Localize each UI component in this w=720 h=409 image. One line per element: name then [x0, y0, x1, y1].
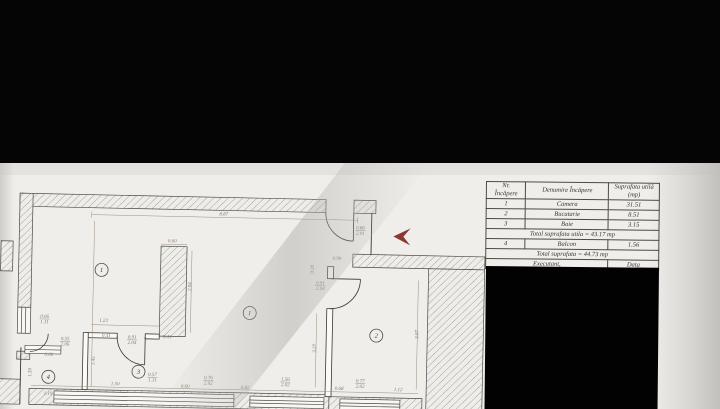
wall-left-upper	[18, 193, 33, 307]
dimension-label: 8.87	[219, 212, 228, 217]
dimension-label: 1.50	[111, 382, 120, 387]
dimension-label: 1.12	[394, 388, 403, 393]
wall-kitchen-left-lower	[325, 309, 333, 397]
dimension-label: 0.60	[168, 239, 177, 244]
dimension-label: 3.07	[415, 330, 420, 339]
paper-left-shadow	[0, 163, 14, 409]
col-header-area: Suprafata utilă (mp)	[609, 183, 660, 201]
window-symbol	[250, 396, 324, 409]
wall-corner-stub	[0, 379, 20, 404]
scan-viewport: 8.870.862.010.900.200.912.040.602.041.23…	[0, 0, 720, 409]
letterbox-top	[0, 0, 720, 163]
dimension-label: 0.571.11	[148, 373, 157, 384]
dimension-label: 1.39	[28, 368, 33, 377]
wall-bath-left	[82, 333, 88, 390]
wall-neighbor-band	[426, 269, 485, 409]
dimension-label: 1.19	[44, 392, 53, 397]
col-header-nr: Nr. Încăpere	[486, 182, 526, 200]
svg-text:1: 1	[100, 267, 103, 274]
wall-bath-top-right	[145, 334, 159, 339]
wall-partition	[159, 246, 187, 337]
dimension-label: 3.27	[313, 343, 318, 352]
dimension-label: 0.06	[44, 353, 53, 358]
dimension-label: 1.45	[92, 356, 97, 365]
dimension-label: 0.68	[335, 387, 344, 392]
table-header-row: Nr. Încăpere Denumire Încăpere Suprafata…	[486, 182, 659, 201]
window-symbol	[17, 307, 31, 333]
dimension-label: 0.661.11	[40, 315, 49, 326]
col-header-name: Denumire Încăpere	[526, 182, 609, 200]
dimension-label: 0.41	[163, 335, 172, 340]
dimension-label: 2.04	[188, 282, 193, 291]
rooms-table: Nr. Încăpere Denumire Încăpere Suprafata…	[485, 181, 660, 271]
redaction-box	[485, 266, 659, 409]
dimension-label: 1.23	[99, 319, 108, 324]
dimension-label: 0.772.02	[356, 379, 365, 390]
wall-kitchen-top	[353, 254, 485, 270]
dimension-label: 0.552.06	[61, 337, 70, 348]
wall-left-edge-stub	[1, 241, 14, 271]
dimension-label: 0.912.04	[128, 335, 137, 346]
dimension-label: 1.562.02	[281, 378, 290, 389]
dimension-label: 0.41	[102, 334, 111, 339]
